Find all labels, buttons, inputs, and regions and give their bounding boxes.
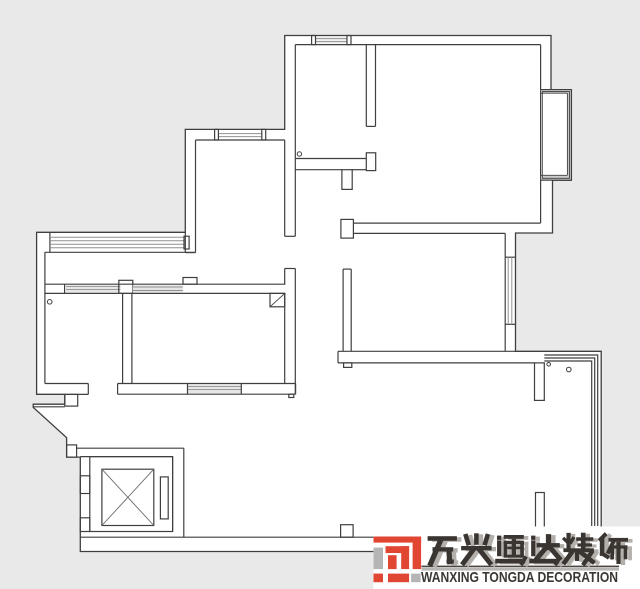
svg-text:WANXING TONGDA DECORATION: WANXING TONGDA DECORATION	[421, 570, 618, 586]
